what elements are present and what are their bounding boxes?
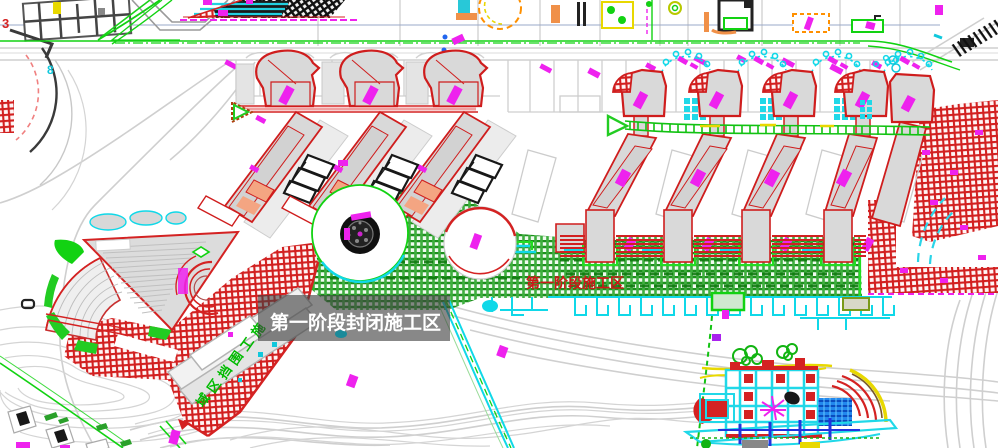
svg-text:第一阶段施工区: 第一阶段施工区: [526, 275, 624, 291]
svg-text:8: 8: [47, 63, 54, 77]
svg-text:第一阶段封闭施工区: 第一阶段封闭施工区: [270, 311, 441, 334]
svg-text:3: 3: [2, 16, 9, 31]
